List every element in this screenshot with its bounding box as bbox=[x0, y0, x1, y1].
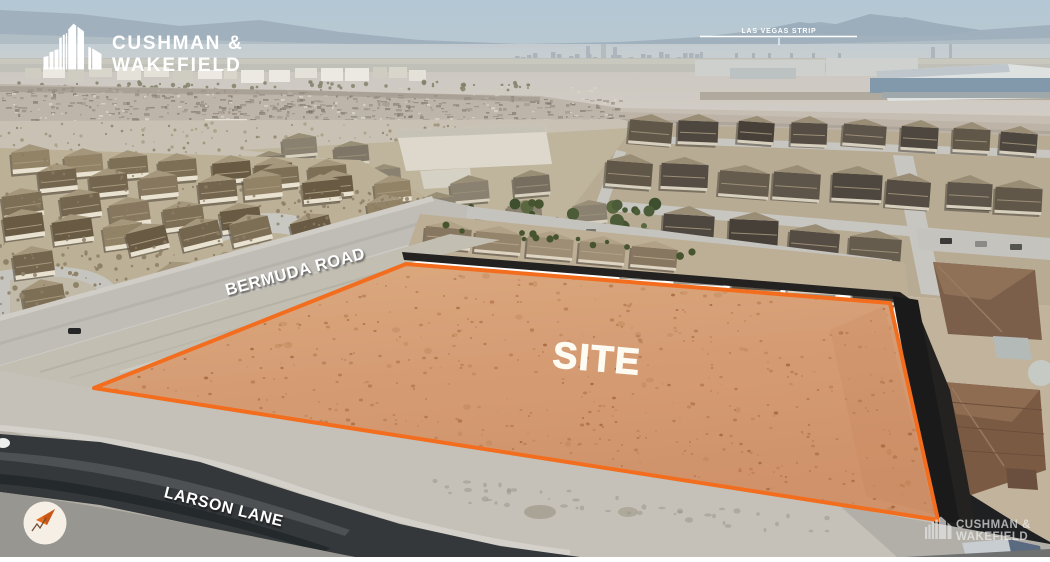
svg-text:LAS VEGAS STRIP: LAS VEGAS STRIP bbox=[741, 28, 816, 35]
svg-text:WAKEFIELD: WAKEFIELD bbox=[956, 531, 1028, 543]
svg-text:SITE: SITE bbox=[551, 334, 642, 383]
svg-text:CUSHMAN &: CUSHMAN & bbox=[112, 33, 243, 54]
svg-text:WAKEFIELD: WAKEFIELD bbox=[112, 55, 242, 76]
svg-text:CUSHMAN &: CUSHMAN & bbox=[956, 519, 1031, 531]
